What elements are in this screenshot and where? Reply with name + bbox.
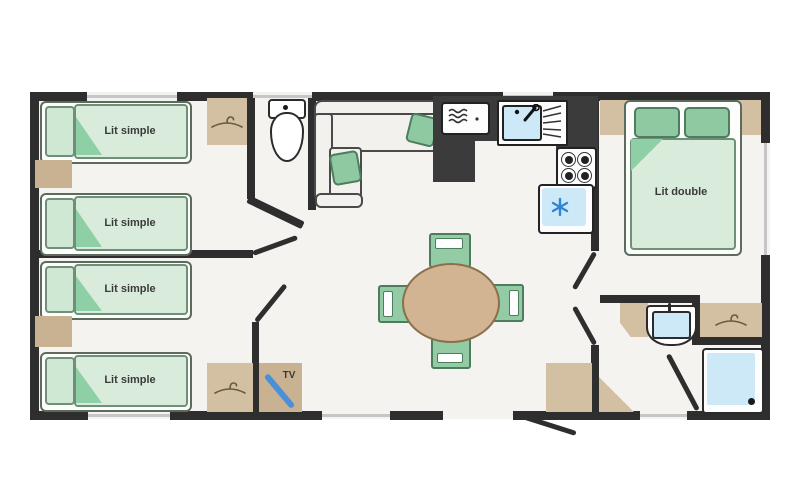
window (87, 95, 177, 98)
tv-cabinet: TV (259, 363, 302, 412)
burner-icon (577, 168, 592, 183)
bed-label: Lit simple (76, 354, 184, 406)
single-bed-4: Lit simple (40, 352, 192, 412)
bed-label: Lit simple (76, 263, 184, 314)
burner-icon (561, 168, 576, 183)
entry-cabinet (546, 363, 592, 412)
wall-wc-left (247, 98, 255, 199)
window (764, 143, 767, 255)
hanger-icon (713, 311, 749, 329)
wall-bathroom-top (600, 295, 700, 303)
fridge (538, 184, 594, 234)
microwave-waves-icon (443, 104, 483, 128)
wardrobe-1 (207, 98, 247, 145)
wardrobe-3 (700, 303, 762, 337)
hanger-icon (212, 379, 248, 397)
nightstand (35, 316, 72, 347)
wardrobe-2 (207, 363, 253, 412)
stove (556, 147, 597, 189)
drain-icon (748, 398, 755, 405)
pillow (45, 198, 75, 249)
bed-label: Lit simple (76, 195, 184, 250)
wall-entry-bathroom (591, 345, 599, 412)
single-bed-2: Lit simple (40, 193, 192, 256)
shower-tray (707, 353, 755, 405)
dining-table (402, 263, 500, 343)
wall-segment (390, 411, 443, 420)
window (88, 414, 170, 417)
bathroom-sink-basin (652, 311, 691, 339)
pillow (634, 107, 680, 138)
pillow (45, 266, 75, 313)
kitchen-sink-unit (497, 100, 568, 146)
tv-label: TV (279, 368, 299, 382)
wall-segment (170, 411, 322, 420)
wall-segment (761, 92, 770, 143)
window (640, 414, 687, 417)
chair-slat (383, 291, 393, 317)
single-bed-1: Lit simple (40, 101, 192, 164)
burner-icon (577, 152, 592, 167)
drainer-icon (541, 103, 563, 141)
wall-bathroom-shelf (697, 337, 763, 345)
bed-label: Lit double (630, 138, 732, 246)
faucet-icon (511, 104, 545, 132)
faucet-icon (668, 303, 671, 313)
window (253, 95, 312, 98)
bathroom-sink-vanity (646, 305, 697, 346)
bed-label: Lit simple (76, 103, 184, 158)
floorplan-canvas: Lit simple Lit simple Lit simple Lit sim… (0, 0, 800, 500)
chair-slat (509, 290, 519, 316)
chair-slat (435, 238, 463, 249)
sofa-armrest (315, 193, 363, 208)
chair-slat (437, 353, 463, 363)
toilet-button (283, 105, 288, 110)
wall-bedroom2-stub (252, 322, 259, 412)
window (322, 414, 390, 417)
snowflake-icon (550, 197, 570, 217)
burner-icon (561, 152, 576, 167)
sofa-cushion (328, 150, 362, 187)
double-bed: Lit double (624, 100, 742, 256)
pillow (684, 107, 730, 138)
microwave (441, 102, 490, 135)
pillow (45, 357, 75, 405)
pillow (45, 106, 75, 157)
shower (702, 348, 764, 414)
hanger-icon (209, 113, 245, 131)
single-bed-3: Lit simple (40, 261, 192, 320)
kitchen-counter-left (433, 141, 475, 182)
nightstand (35, 160, 72, 188)
